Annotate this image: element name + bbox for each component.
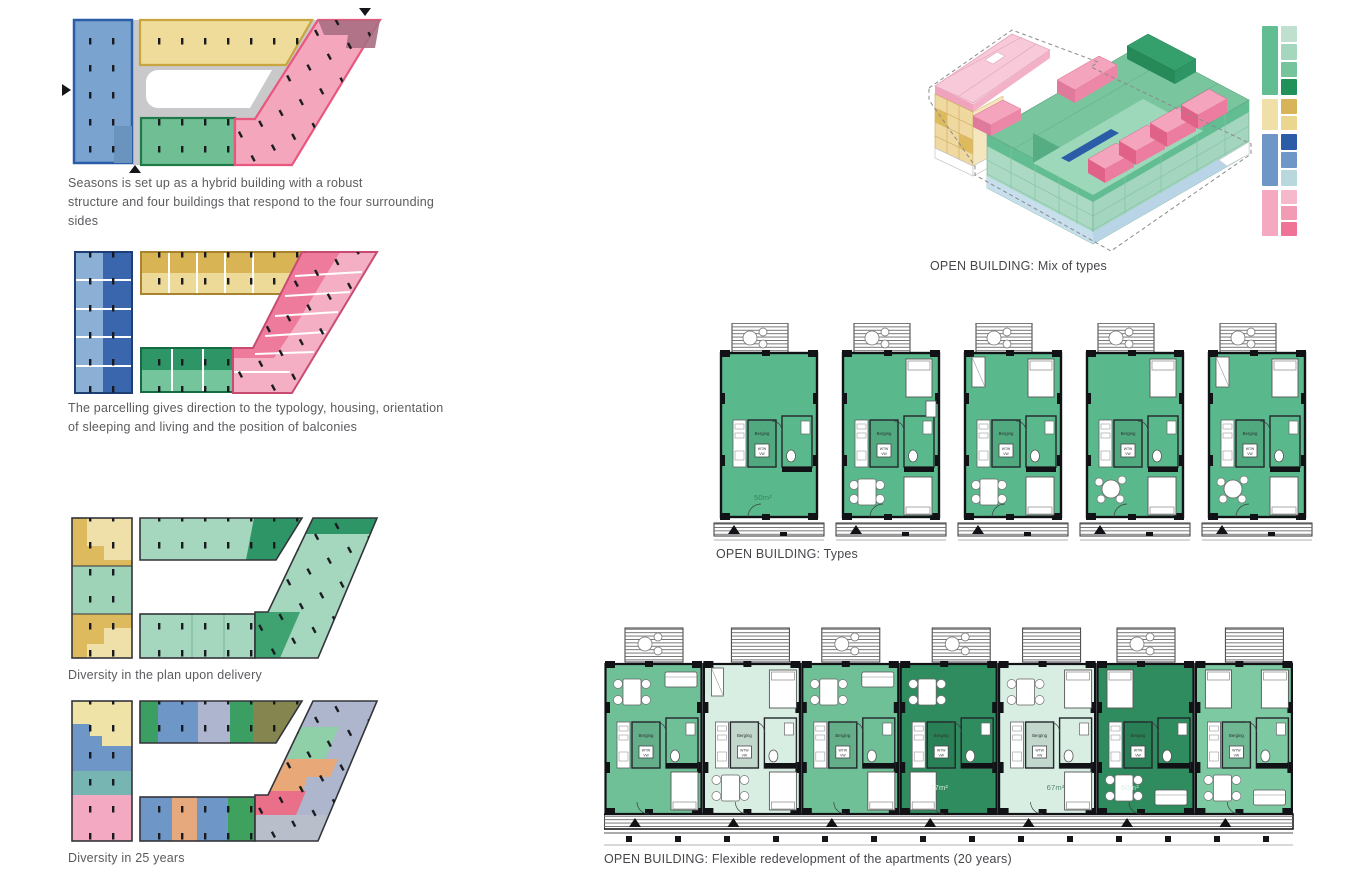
apartment-type-unit: Berging WTW VW [714, 323, 824, 540]
sofa [665, 672, 697, 687]
bed [1205, 670, 1231, 708]
toilet [1275, 450, 1284, 462]
area-label: 50m² [754, 493, 772, 502]
apartment-types-plans: Berging WTW VW [713, 323, 1313, 543]
svg-text:Berging: Berging [1229, 733, 1244, 738]
bed [1107, 670, 1133, 708]
storage-berging [927, 722, 955, 768]
storage-berging [1124, 722, 1152, 768]
legend-swatch [1281, 222, 1297, 236]
flex-apartment-unit: Berging WTW VW [999, 628, 1096, 827]
bed [906, 359, 932, 397]
diagram-hybrid-structure [62, 6, 392, 174]
isometric-block-diagram [915, 8, 1260, 256]
svg-text:Berging: Berging [877, 431, 892, 436]
toilet [1064, 750, 1073, 762]
storage-berging [730, 722, 758, 768]
bed [1065, 670, 1092, 708]
svg-text:VW: VW [742, 754, 748, 758]
access-gallery [604, 814, 1293, 845]
svg-text:Berging: Berging [1032, 733, 1047, 738]
area-label: 60m² [1121, 783, 1139, 792]
sofa [862, 672, 894, 687]
architecture-sheet: Seasons is set up as a hybrid building w… [0, 0, 1370, 893]
toilet [1153, 450, 1162, 462]
legend-swatch [1281, 116, 1297, 131]
caption-line: structure and four buildings that respon… [68, 193, 448, 212]
area-label: 67m² [1047, 783, 1065, 792]
svg-text:VW: VW [1037, 754, 1043, 758]
svg-text:WTW: WTW [740, 749, 749, 753]
caption-seasons: Seasons is set up as a hybrid building w… [68, 174, 448, 231]
svg-text:Berging: Berging [737, 733, 752, 738]
storage-berging [748, 420, 776, 467]
toilet [909, 450, 918, 462]
storage-berging [870, 420, 898, 467]
storage-berging [829, 722, 857, 768]
legend-group-blue [1262, 134, 1297, 186]
flex-apartment-unit: Berging WTW VW [802, 628, 899, 827]
toilet [769, 750, 778, 762]
balcony [1098, 323, 1154, 353]
svg-text:VW: VW [1003, 452, 1009, 456]
svg-text:VW: VW [938, 754, 944, 758]
bed [769, 670, 796, 708]
cabinet [972, 357, 985, 387]
legend-swatch [1281, 170, 1297, 186]
bed [868, 772, 895, 810]
bed [671, 772, 698, 810]
balcony [1023, 628, 1081, 662]
toilet [966, 750, 975, 762]
caption-25years: Diversity in 25 years [68, 849, 185, 868]
flex-apartment-unit: Berging WTW VW [1195, 628, 1292, 827]
svg-text:VW: VW [881, 452, 887, 456]
flex-apartment-unit: Berging WTW VW [900, 628, 997, 827]
arrow-left-icon [62, 84, 71, 96]
svg-text:Berging: Berging [755, 431, 770, 436]
svg-text:VW: VW [1135, 754, 1141, 758]
legend-group-pink [1262, 190, 1297, 236]
svg-text:Berging: Berging [1131, 733, 1146, 738]
legend-swatch [1262, 99, 1278, 130]
diagram-diversity-delivery [62, 510, 392, 665]
bed [1270, 477, 1298, 515]
legend-swatch [1281, 44, 1297, 60]
svg-text:WTW: WTW [1035, 749, 1044, 753]
toilet [671, 750, 680, 762]
caption-line: sides [68, 212, 448, 231]
legend-swatch [1262, 190, 1278, 236]
svg-text:WTW: WTW [1002, 447, 1011, 451]
legend-swatch [1281, 99, 1297, 114]
balcony [625, 628, 683, 662]
access-gallery [958, 523, 1068, 540]
storage-berging [1026, 722, 1054, 768]
svg-text:WTW: WTW [758, 447, 767, 451]
balcony [976, 323, 1032, 353]
bed [1272, 359, 1298, 397]
legend-swatch [1281, 152, 1297, 168]
svg-text:Berging: Berging [639, 733, 654, 738]
legend-swatch [1262, 134, 1278, 186]
svg-text:WTW: WTW [1134, 749, 1143, 753]
type-color-legend [1262, 26, 1297, 236]
svg-text:WTW: WTW [839, 749, 848, 753]
apartment-type-unit: Berging WTW VW [836, 323, 946, 540]
balcony [854, 323, 910, 353]
caption-line: The parcelling gives direction to the ty… [68, 399, 448, 418]
balcony [731, 628, 789, 662]
flex-apartment-unit: Berging WTW VW [1097, 628, 1194, 827]
cabinet [1216, 357, 1229, 387]
svg-text:WTW: WTW [937, 749, 946, 753]
storage-berging [992, 420, 1020, 467]
storage-berging [1114, 420, 1142, 467]
bed [1028, 359, 1054, 397]
caption-parcelling: The parcelling gives direction to the ty… [68, 399, 448, 437]
legend-swatch [1281, 134, 1297, 150]
bed [1026, 477, 1054, 515]
access-gallery [1202, 523, 1312, 540]
apartment-type-unit: Berging WTW VW [1080, 323, 1190, 540]
apartment-type-unit: Berging WTW VW [1202, 323, 1312, 540]
toilet [787, 450, 796, 462]
flexible-redevelopment-plan: Berging WTW VW [604, 622, 1304, 850]
svg-text:VW: VW [1125, 452, 1131, 456]
arrow-up-icon [129, 165, 141, 173]
courtyard [146, 70, 272, 108]
svg-text:WTW: WTW [1246, 447, 1255, 451]
legend-swatch [1281, 26, 1297, 42]
arrow-down-icon [359, 8, 371, 16]
caption-mix-of-types: OPEN BUILDING: Mix of types [930, 257, 1107, 276]
apartment-type-unit: Berging WTW VW [958, 323, 1068, 540]
svg-text:Berging: Berging [934, 733, 949, 738]
bed [769, 772, 796, 810]
legend-group-green [1262, 26, 1297, 95]
caption-line: Seasons is set up as a hybrid building w… [68, 174, 448, 193]
storage-berging [632, 722, 660, 768]
storage-berging [1222, 722, 1250, 768]
bed [1261, 670, 1288, 708]
legend-swatch [1281, 62, 1297, 78]
balcony [1220, 323, 1276, 353]
area-label: 77m² [930, 783, 948, 792]
balcony [732, 323, 788, 353]
toilet [1261, 750, 1270, 762]
flex-apartment-unit: Berging WTW VW [605, 628, 702, 827]
svg-text:VW: VW [643, 754, 649, 758]
legend-swatch [1281, 206, 1297, 220]
bed [1148, 477, 1176, 515]
diagram-parcelling [62, 246, 392, 398]
svg-text:WTW: WTW [642, 749, 651, 753]
svg-text:VW: VW [1247, 452, 1253, 456]
caption-delivery: Diversity in the plan upon delivery [68, 666, 262, 685]
sofa [1155, 790, 1187, 805]
wardrobe [926, 401, 936, 417]
diagram-diversity-25years [62, 693, 392, 850]
flex-apartment-unit: Berging WTW VW [703, 628, 800, 827]
caption-flexible: OPEN BUILDING: Flexible redevelopment of… [604, 850, 1012, 869]
bed [1150, 359, 1176, 397]
svg-text:WTW: WTW [1232, 749, 1241, 753]
svg-text:Berging: Berging [1121, 431, 1136, 436]
toilet [1163, 750, 1172, 762]
legend-swatch [1281, 79, 1297, 95]
toilet [867, 750, 876, 762]
access-gallery [836, 523, 946, 540]
svg-text:Berging: Berging [999, 431, 1014, 436]
svg-text:Berging: Berging [1243, 431, 1258, 436]
balcony [822, 628, 880, 662]
bed [1065, 772, 1092, 810]
bed [904, 477, 932, 515]
caption-types: OPEN BUILDING: Types [716, 545, 858, 564]
legend-swatch [1262, 26, 1278, 95]
access-gallery [714, 523, 824, 540]
cabinet [711, 668, 723, 696]
balcony [1225, 628, 1283, 662]
balcony [1117, 628, 1175, 662]
svg-text:VW: VW [840, 754, 846, 758]
legend-group-yellow [1262, 99, 1297, 130]
balcony [932, 628, 990, 662]
access-gallery [1080, 523, 1190, 540]
sofa [1253, 790, 1285, 805]
svg-text:WTW: WTW [1124, 447, 1133, 451]
toilet [1031, 450, 1040, 462]
storage-berging [1236, 420, 1264, 467]
svg-text:VW: VW [759, 452, 765, 456]
svg-text:Berging: Berging [835, 733, 850, 738]
svg-text:WTW: WTW [880, 447, 889, 451]
caption-line: of sleeping and living and the position … [68, 418, 448, 437]
svg-text:VW: VW [1234, 754, 1240, 758]
legend-swatch [1281, 190, 1297, 204]
